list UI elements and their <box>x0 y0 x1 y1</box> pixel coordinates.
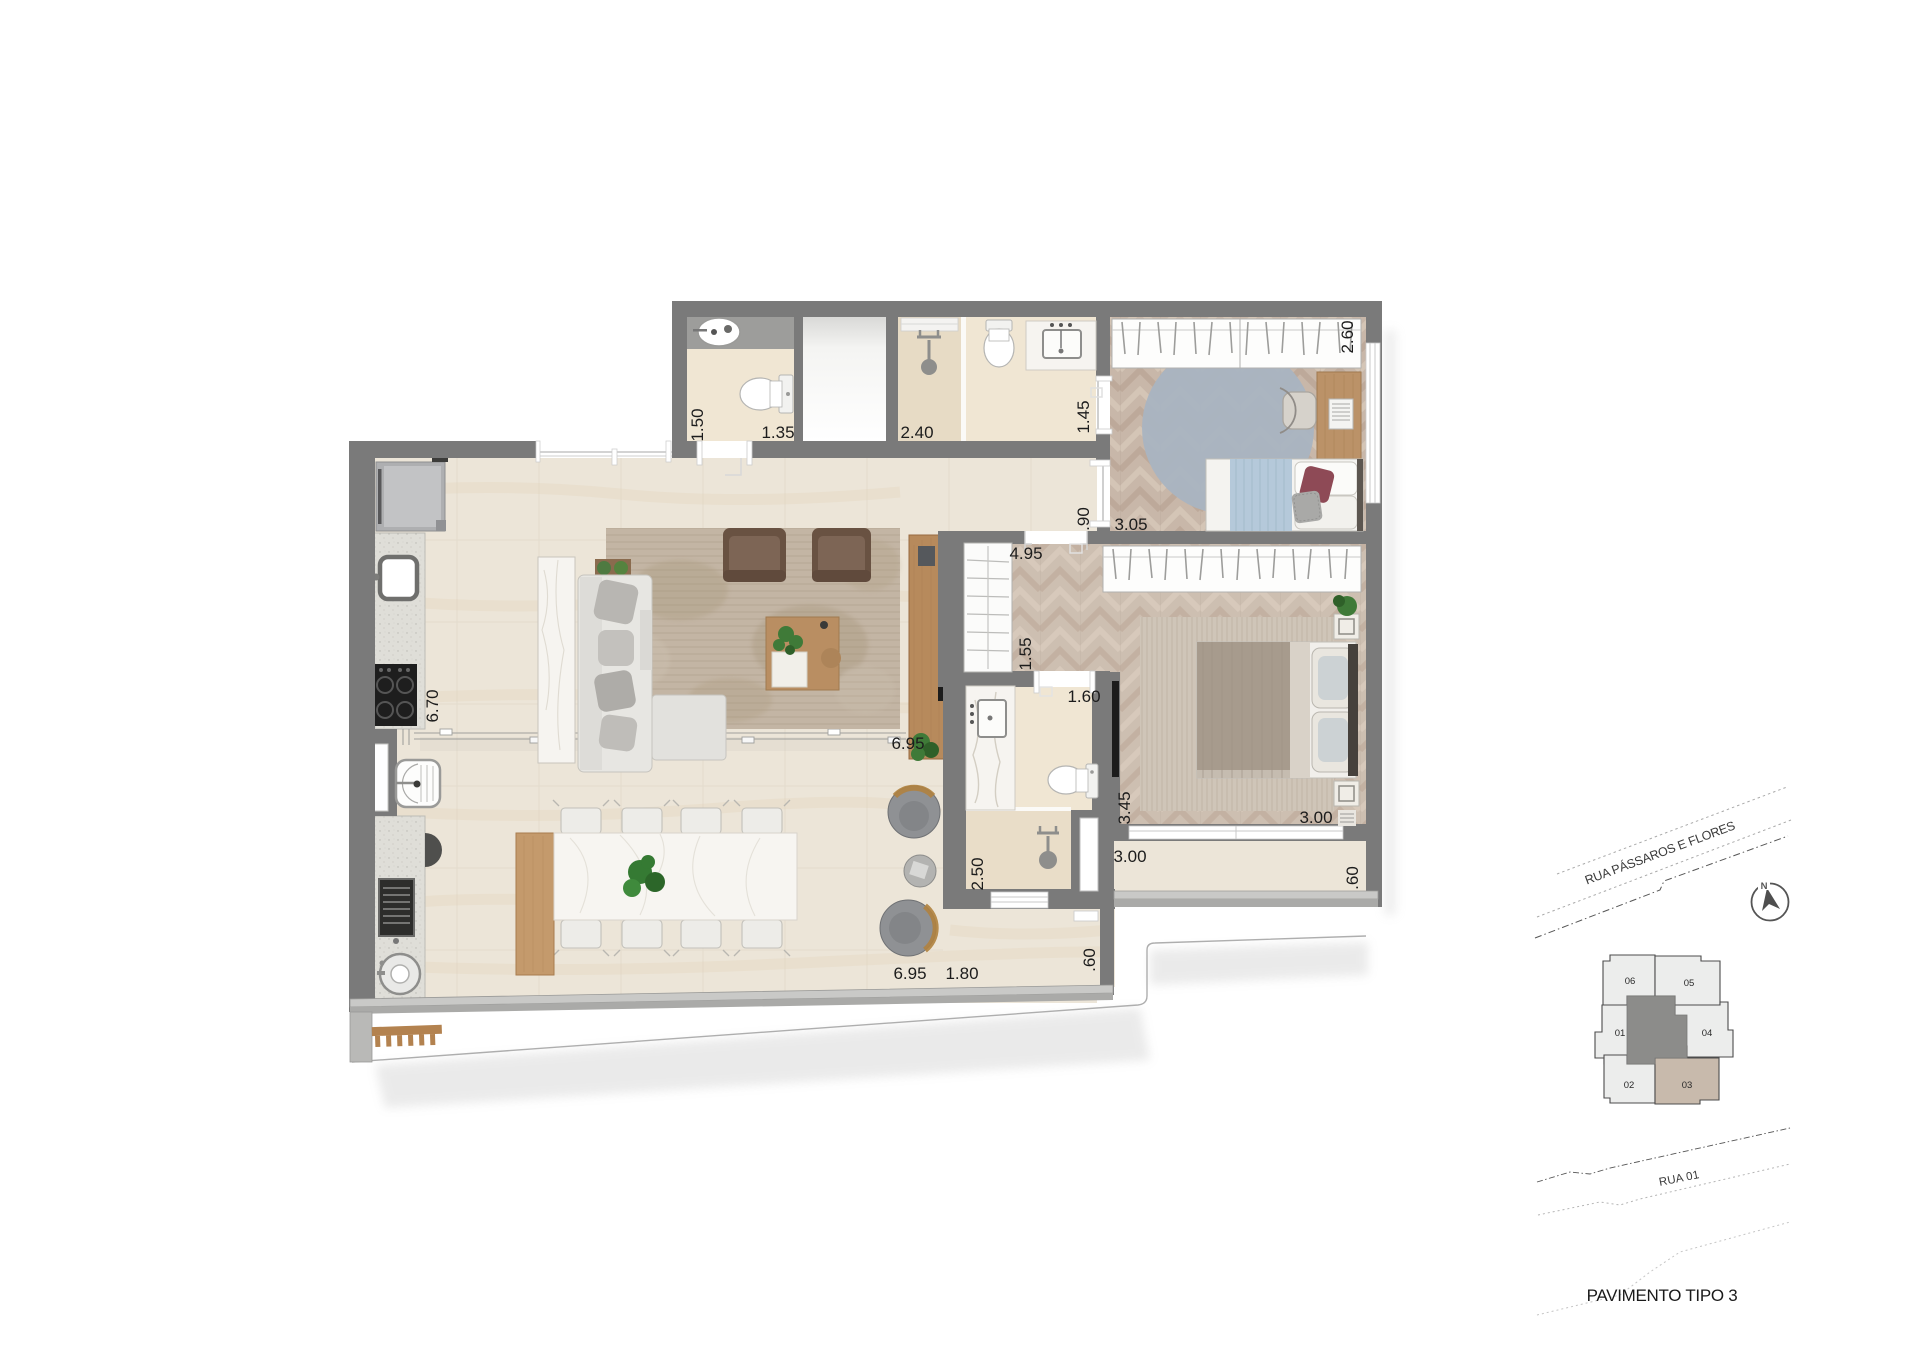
svg-text:PAVIMENTO TIPO 3: PAVIMENTO TIPO 3 <box>1587 1286 1738 1305</box>
svg-text:02: 02 <box>1624 1080 1635 1091</box>
svg-text:1.45: 1.45 <box>1074 400 1093 433</box>
svg-text:6.95: 6.95 <box>891 734 924 753</box>
svg-text:1.60: 1.60 <box>1067 687 1100 706</box>
svg-text:2.60: 2.60 <box>1338 320 1357 353</box>
svg-text:2.50: 2.50 <box>968 857 987 890</box>
svg-text:3.00: 3.00 <box>1299 808 1332 827</box>
svg-text:N: N <box>1761 881 1768 892</box>
svg-text:3.00: 3.00 <box>1113 847 1146 866</box>
svg-text:1.80: 1.80 <box>945 964 978 983</box>
svg-text:3.05: 3.05 <box>1114 515 1147 534</box>
svg-text:1.55: 1.55 <box>1016 637 1035 670</box>
svg-text:03: 03 <box>1682 1080 1693 1091</box>
svg-text:1.35: 1.35 <box>761 423 794 442</box>
svg-text:1.50: 1.50 <box>688 408 707 441</box>
svg-text:.60: .60 <box>1080 948 1099 972</box>
svg-text:04: 04 <box>1702 1028 1713 1039</box>
svg-text:05: 05 <box>1684 978 1695 989</box>
svg-text:.60: .60 <box>1343 866 1362 890</box>
svg-text:3.45: 3.45 <box>1115 791 1134 824</box>
svg-text:2.40: 2.40 <box>900 423 933 442</box>
svg-text:01: 01 <box>1615 1028 1626 1039</box>
svg-text:6.70: 6.70 <box>423 689 442 722</box>
svg-text:6.95: 6.95 <box>893 964 926 983</box>
svg-text:4.95: 4.95 <box>1009 544 1042 563</box>
svg-text:.90: .90 <box>1074 507 1093 531</box>
svg-text:06: 06 <box>1625 976 1636 987</box>
